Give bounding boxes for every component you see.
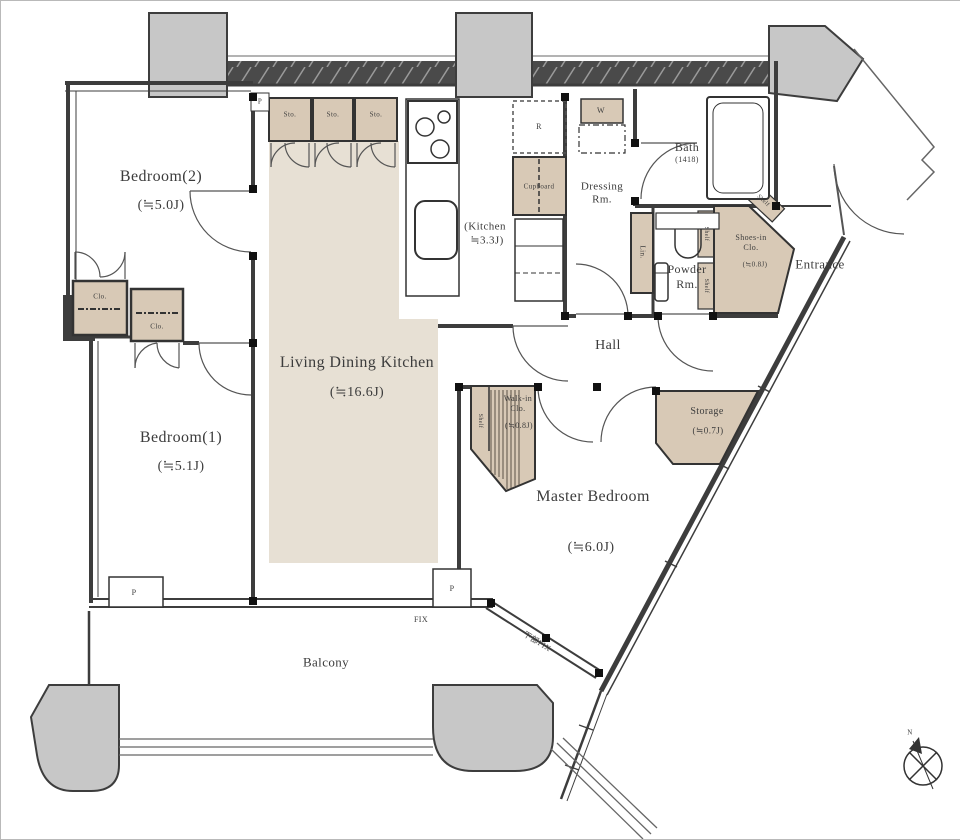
sto-label: Sto. — [327, 112, 340, 119]
north-label: N — [907, 730, 912, 737]
burner — [431, 140, 449, 158]
master-label: Master Bedroom — [536, 489, 650, 505]
floor-plan: Bedroom(2) (≒5.0J) Bedroom(1) (≒5.1J) Li… — [0, 0, 960, 840]
vanity-sink — [675, 229, 701, 258]
walkin-size: (≒0.8J) — [505, 422, 533, 430]
sink — [415, 201, 457, 259]
ldk-label: Living Dining Kitchen — [280, 355, 434, 371]
sto-label: Sto. — [284, 112, 297, 119]
toilet — [655, 263, 668, 301]
burner — [416, 118, 434, 136]
washer-label: W — [597, 107, 605, 115]
fridge-label: R — [536, 123, 542, 131]
closet-bedroom1 — [131, 289, 183, 341]
kitchen-size: ≒3.3J) — [470, 236, 503, 247]
balcony-railing — [89, 611, 657, 839]
storage-size: (≒0.7J) — [692, 427, 723, 436]
bedroom1-size: (≒5.1J) — [158, 460, 205, 474]
shelf-label: Shelf — [477, 414, 483, 429]
balcony-pillar — [433, 685, 553, 771]
sto-cabinet — [313, 98, 353, 141]
bedroom2-size: (≒5.0J) — [138, 199, 185, 213]
balcony-pillar — [31, 685, 119, 791]
shoes-in-closet — [714, 206, 794, 313]
walkin-label2: Clo. — [510, 405, 525, 413]
sto-cabinet — [355, 98, 397, 141]
bedroom1-label: Bedroom(1) — [140, 430, 222, 446]
shoesin-label2: Clo. — [743, 244, 758, 252]
shoesin-label: Shoes-in — [735, 234, 766, 242]
kitchen-tall-cabinet — [515, 219, 563, 301]
clo-label: Clo. — [93, 294, 106, 301]
pipe-space-label: P — [132, 589, 137, 597]
kitchen-label: (Kitchen — [464, 222, 506, 233]
clo-label: Clo. — [150, 324, 163, 331]
washer-pan — [579, 125, 625, 153]
shelf-label: Shelf — [703, 279, 709, 294]
bath-size: (1418) — [675, 156, 699, 164]
pillar — [456, 13, 532, 97]
dressing-label2: Rm. — [592, 195, 612, 206]
compass — [904, 737, 942, 789]
powder-label: Powder — [667, 263, 706, 275]
shoesin-size: (≒0.8J) — [743, 262, 768, 269]
linen-label: Lin. — [639, 245, 646, 258]
pillar — [769, 26, 863, 101]
balcony-label: Balcony — [303, 656, 349, 669]
walkin-label: Walk-in — [504, 395, 532, 403]
storage-label: Storage — [690, 407, 723, 417]
pipe-space-label: P — [258, 99, 262, 106]
sto-cabinet — [269, 98, 311, 141]
hall-label: Hall — [595, 339, 621, 353]
shelf-label: Shelf — [703, 227, 709, 242]
master-size: (≒6.0J) — [568, 541, 615, 555]
bath-label: Bath — [675, 141, 699, 153]
burner — [438, 111, 450, 123]
fix-label: FIX — [414, 616, 428, 624]
powder-label2: Rm. — [676, 278, 698, 290]
cupboard-label: Cupboard — [524, 184, 555, 191]
bedroom2-label: Bedroom(2) — [120, 169, 202, 185]
vanity-counter — [656, 213, 719, 229]
ldk-size: (≒16.6J) — [330, 386, 384, 400]
dressing-label: Dressing — [581, 182, 623, 193]
sto-label: Sto. — [370, 112, 383, 119]
entrance-label: Entrance — [795, 258, 844, 271]
pipe-space-label: P — [450, 585, 455, 593]
bath-fixtures — [707, 97, 769, 199]
